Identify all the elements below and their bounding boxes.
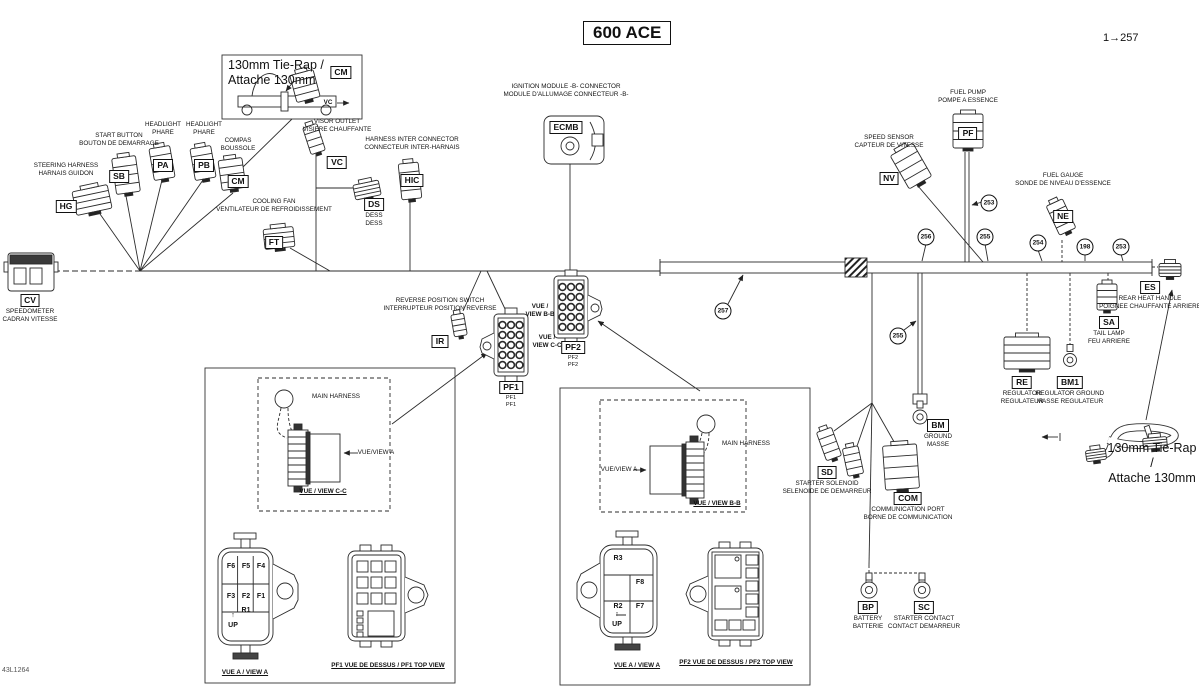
fuse-cell-f6: F6: [227, 563, 235, 571]
wiring-diagram-page: 600 ACE 1→257 43L1264 130mm Tie-Rap / At…: [0, 0, 1199, 690]
connector-code-hic: HIC: [401, 174, 424, 187]
connector-code-com: COM: [894, 492, 922, 505]
view-note-1: VUE / VIEW C-C: [532, 334, 561, 349]
connector-label-pf-11: FUEL PUMPPOMPE A ESSENCEPF: [938, 89, 998, 141]
tie-rap-note-line2: Attache 130mm: [1105, 471, 1199, 486]
fuse-cell-f3: F3: [227, 593, 235, 601]
sd-solenoid-glyph-1: [815, 423, 843, 463]
view-note-2: MAIN HARNESS: [312, 393, 360, 401]
page-reference: 1→257: [1103, 32, 1138, 44]
connector-code-bm1: BM1: [1057, 376, 1083, 389]
connector-description: COMPASBOUSSOLE: [221, 137, 256, 152]
part-ref-254-5: 254: [1030, 235, 1047, 252]
connector-description: GROUNDMASSE: [924, 433, 952, 448]
connector-label-pf2-25: PF2PF2PF2: [561, 337, 585, 368]
connector-code-sd: SD: [817, 466, 837, 479]
connector-label-sd-19: SDSTARTER SOLENOIDSELENOIDE DE DEMARREUR: [783, 462, 872, 495]
fuse-cell-f5: F5: [242, 563, 250, 571]
pf2-connector-glyph: [554, 270, 602, 344]
connector-label-ds-7: DSDESSDESS: [364, 194, 384, 227]
connector-code-re: RE: [1012, 376, 1032, 389]
connector-code-hg: HG: [56, 200, 77, 213]
fuse-cell-up: UP: [612, 621, 622, 629]
connector-code-ir: IR: [432, 335, 449, 348]
view-note-4: VUE / VIEW C-C: [299, 488, 346, 496]
connector-code-pf2: PF2: [561, 341, 585, 354]
connector-label-ir-23: REVERSE POSITION SWITCHINTERRUPTEUR POSI…: [383, 297, 496, 349]
sc-ring-terminal: [914, 573, 930, 598]
connector-code-es: ES: [1140, 281, 1159, 294]
connector-description: HARNESS INTER CONNECTORCONNECTEUR INTER-…: [364, 136, 459, 151]
connector-description: FUEL GAUGESONDE DE NIVEAU D'ESSENCE: [1015, 172, 1111, 187]
connector-label-cm-26: CM: [330, 62, 351, 80]
connector-description: SPEEDOMETERCADRAN VITESSE: [3, 308, 58, 323]
connector-description: STARTER CONTACTCONTACT DEMARREUR: [888, 615, 960, 630]
connector-code-bm: BM: [927, 419, 948, 432]
connector-description: STARTER SOLENOIDSELENOIDE DE DEMARREUR: [783, 480, 872, 495]
connector-label-sa-14: SATAIL LAMPFEU ARRIERE: [1088, 312, 1130, 345]
connector-description: PF2PF2: [561, 355, 585, 368]
view-note-3: VUE/VIEW A: [358, 449, 394, 457]
connector-description: DESSDESS: [364, 212, 384, 227]
view-note-9: PF1 VUE DE DESSUS / PF1 TOP VIEW: [331, 662, 445, 670]
connector-description: REGULATOR GROUNDMASSE REGULATEUR: [1036, 390, 1104, 405]
part-ref-255-1: 255: [890, 328, 907, 345]
connector-code-ds: DS: [364, 198, 384, 211]
connector-label-ecmb-10: IGNITION MODULE -B- CONNECTORMODULE D'AL…: [503, 83, 628, 135]
connector-label-pb-3: HEADLIGHTPHAREPB: [186, 121, 222, 173]
connector-description: VISOR OUTLETVISIERE CHAUFFANTE: [303, 118, 372, 133]
connector-label-sc-22: SCSTARTER CONTACTCONTACT DEMARREUR: [888, 597, 960, 630]
connector-code-pa: PA: [153, 159, 172, 172]
connector-code-pb: PB: [194, 159, 214, 172]
connector-code-ecmb: ECMB: [549, 121, 582, 134]
connector-label-ft-8: COOLING FANVENTILATEUR DE REFROIDISSEMEN…: [216, 198, 332, 250]
fuse-cell-f7: F7: [636, 603, 644, 611]
connector-description: TAIL LAMPFEU ARRIERE: [1088, 330, 1130, 345]
connector-description: HEADLIGHTPHARE: [186, 121, 222, 136]
connector-label-es-15: ESREAR HEAT HANDLEPOIGNEE CHAUFFANTE ARR…: [1099, 277, 1199, 310]
connector-description: REAR HEAT HANDLEPOIGNEE CHAUFFANTE ARRIE…: [1099, 295, 1199, 310]
fuse-cell-r2: R2: [614, 603, 623, 611]
connector-description: COOLING FANVENTILATEUR DE REFROIDISSEMEN…: [216, 198, 332, 213]
view-note-6: VUE/VIEW A: [601, 466, 637, 474]
connector-code-vc: VC: [327, 156, 347, 169]
view-note-12: VC: [324, 99, 333, 107]
connector-description: BATTERYBATTERIE: [853, 615, 883, 630]
connector-description: COMMUNICATION PORTBORNE DE COMMUNICATION: [864, 506, 953, 521]
connector-code-cm: CM: [330, 66, 351, 79]
tie-rap-note-bottom: 130mm Tie-Rap / Attache 130mm: [1105, 441, 1199, 486]
fuse-cell-f8: F8: [636, 579, 644, 587]
connector-label-cm-4: COMPASBOUSSOLECM: [221, 137, 256, 189]
connector-label-bm1-17: BM1REGULATOR GROUNDMASSE REGULATEUR: [1036, 372, 1104, 405]
view-note-8: VUE A / VIEW A: [222, 669, 268, 677]
connector-label-hic-6: HARNESS INTER CONNECTORCONNECTEUR INTER-…: [364, 136, 459, 188]
part-ref-256-3: 256: [918, 229, 935, 246]
connector-code-pf1: PF1: [499, 381, 523, 394]
connector-description: HEADLIGHTPHARE: [145, 121, 181, 136]
sheet-number: 43L1264: [2, 667, 29, 674]
connector-label-com-20: COMCOMMUNICATION PORTBORNE DE COMMUNICAT…: [864, 488, 953, 521]
connector-code-sb: SB: [109, 170, 129, 183]
connector-label-nv-12: SPEED SENSORCAPTEUR DE VITESSENV: [855, 134, 924, 186]
fuse-cell-r3: R3: [614, 555, 623, 563]
fuse-cell-f1: F1: [257, 593, 265, 601]
fuse-cell-↑: ↑: [231, 612, 235, 620]
diagram-title: 600 ACE: [583, 21, 671, 45]
com-port-glyph: [882, 440, 919, 493]
fuse-cell-up: UP: [228, 622, 238, 630]
part-ref-255-4: 255: [977, 229, 994, 246]
view-note-7: VUE / VIEW B-B: [693, 500, 740, 508]
part-ref-253-7: 253: [1113, 239, 1130, 256]
connector-label-pf1-24: PF1PF1PF1: [499, 377, 523, 408]
connector-code-ne: NE: [1053, 210, 1073, 223]
connector-label-bp-21: BPBATTERYBATTERIE: [853, 597, 883, 630]
re-regulator-glyph: [1004, 333, 1050, 372]
bp-ring-terminal: [861, 573, 877, 598]
view-note-0: VUE / VIEW B-B: [525, 303, 554, 318]
part-ref-198-6: 198: [1077, 239, 1094, 256]
bm1-ring-terminal: [1064, 345, 1077, 367]
connector-code-sc: SC: [914, 601, 934, 614]
part-ref-253-2: 253: [981, 195, 998, 212]
connector-label-pa-2: HEADLIGHTPHAREPA: [145, 121, 181, 173]
tie-rap-note-top: 130mm Tie-Rap / Attache 130mm: [228, 58, 324, 88]
connector-code-ft: FT: [265, 236, 283, 249]
connector-label-ne-13: FUEL GAUGESONDE DE NIVEAU D'ESSENCENE: [1015, 172, 1111, 224]
connector-description: FUEL PUMPPOMPE A ESSENCE: [938, 89, 998, 104]
connector-code-cm: CM: [227, 175, 248, 188]
connector-code-sa: SA: [1099, 316, 1119, 329]
connector-code-nv: NV: [879, 172, 899, 185]
tie-rap-note-line1: 130mm Tie-Rap /: [228, 58, 324, 73]
view-note-10: VUE A / VIEW A: [614, 662, 660, 670]
connector-code-pf: PF: [959, 127, 978, 140]
connector-description: REVERSE POSITION SWITCHINTERRUPTEUR POSI…: [383, 297, 496, 312]
fuse-cell-r1: R1: [242, 607, 251, 615]
tie-rap-note-line1: 130mm Tie-Rap /: [1105, 441, 1199, 471]
fuse-cell-f2: F2: [242, 593, 250, 601]
view-note-5: MAIN HARNESS: [722, 440, 770, 448]
fuse-cell-f4: F4: [257, 563, 265, 571]
connector-label-bm-18: BMGROUNDMASSE: [924, 415, 952, 448]
fuse-cell-↑: ↑: [615, 611, 619, 619]
connector-label-cv-9: CVSPEEDOMETERCADRAN VITESSE: [3, 290, 58, 323]
part-ref-257-0: 257: [715, 303, 732, 320]
connector-description: IGNITION MODULE -B- CONNECTORMODULE D'AL…: [503, 83, 628, 98]
connector-description: SPEED SENSORCAPTEUR DE VITESSE: [855, 134, 924, 149]
connector-description: PF1PF1: [499, 395, 523, 408]
connector-code-cv: CV: [20, 294, 40, 307]
view-note-11: PF2 VUE DE DESSUS / PF2 TOP VIEW: [679, 659, 793, 667]
connector-label-vc-5: VISOR OUTLETVISIERE CHAUFFANTEVC: [303, 118, 372, 170]
tie-rap-note-line2: Attache 130mm: [228, 73, 324, 88]
connector-code-bp: BP: [858, 601, 878, 614]
sa-cable-glyph: [1085, 444, 1107, 465]
